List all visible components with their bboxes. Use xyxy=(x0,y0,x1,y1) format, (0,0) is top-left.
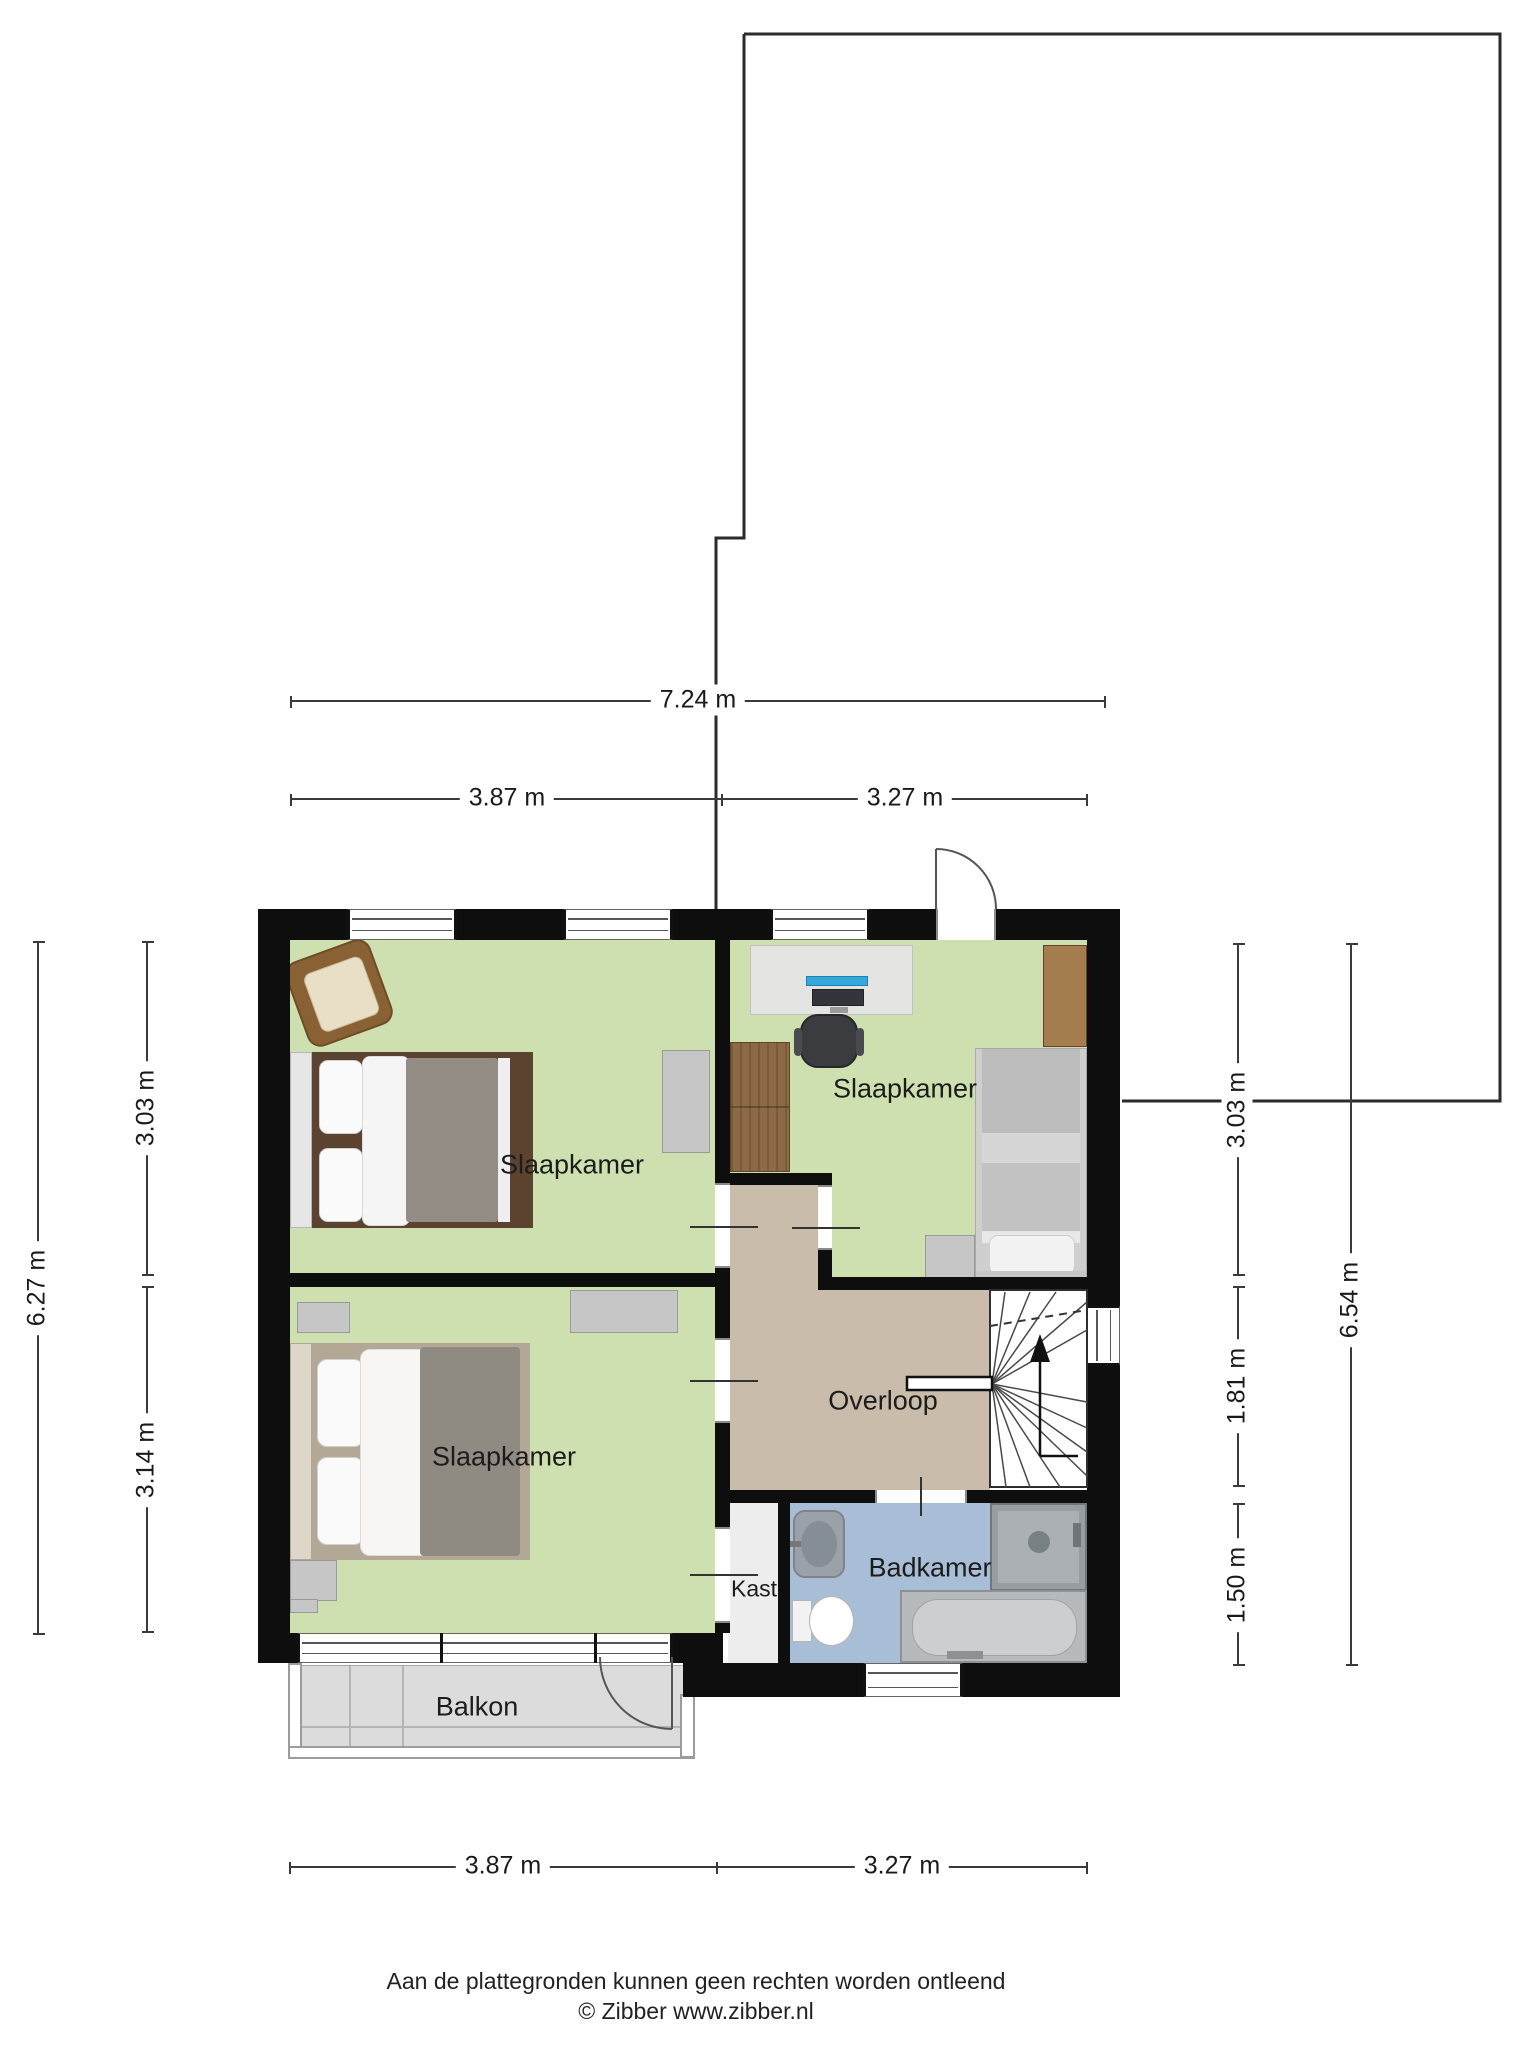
room-label-bedroom-bottom-left: Slaapkamer xyxy=(432,1442,576,1473)
dim-label-left-total: 6.27 m xyxy=(22,1241,53,1335)
copyright-text: © Zibber www.zibber.nl xyxy=(578,1998,814,2025)
dim-label-top-right: 3.27 m xyxy=(858,783,952,814)
door-swing-arc xyxy=(600,1657,672,1729)
ground-floor-outline xyxy=(716,34,1500,1101)
dim-label-right-upper: 3.03 m xyxy=(1222,1063,1253,1157)
linework-overlay xyxy=(0,0,1536,2048)
dim-label-right-lower: 1.50 m xyxy=(1222,1538,1253,1632)
room-label-balcony: Balkon xyxy=(436,1692,519,1723)
dim-label-top-left: 3.87 m xyxy=(460,783,554,814)
disclaimer-text: Aan de plattegronden kunnen geen rechten… xyxy=(387,1968,1006,1995)
room-label-bathroom: Badkamer xyxy=(868,1553,991,1584)
staircase xyxy=(990,1290,1087,1487)
room-label-closet: Kast xyxy=(731,1576,777,1603)
dim-label-right-total: 6.54 m xyxy=(1335,1253,1366,1347)
dim-label-left-lower: 3.14 m xyxy=(131,1413,162,1507)
room-label-bedroom-top-left: Slaapkamer xyxy=(500,1150,644,1181)
room-label-bedroom-right: Slaapkamer xyxy=(833,1074,977,1105)
floorplan-page: Slaapkamer Slaapkamer Slaapkamer Overloo… xyxy=(0,0,1536,2048)
dim-label-right-middle: 1.81 m xyxy=(1222,1339,1253,1433)
room-label-landing: Overloop xyxy=(828,1386,938,1417)
door-swing-arc xyxy=(936,849,996,909)
dim-label-top-total: 7.24 m xyxy=(651,685,745,716)
dim-label-left-upper: 3.03 m xyxy=(131,1061,162,1155)
dim-label-bottom-left: 3.87 m xyxy=(456,1851,550,1882)
dim-label-bottom-right: 3.27 m xyxy=(855,1851,949,1882)
